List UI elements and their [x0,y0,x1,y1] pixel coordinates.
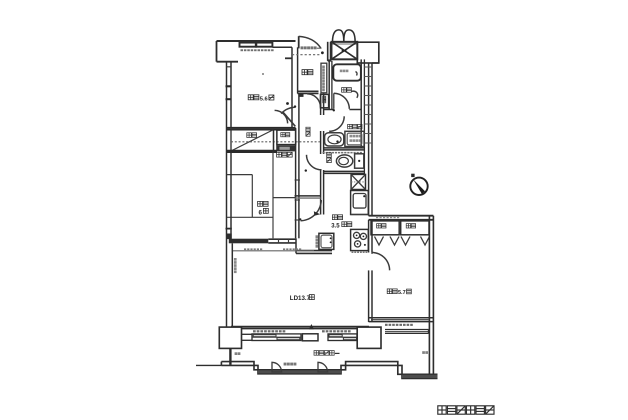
svg-text:LD13.7: LD13.7 [290,295,311,302]
svg-text:5.6: 5.6 [260,96,268,102]
svg-text:3.5: 3.5 [331,224,340,230]
svg-text:6: 6 [259,209,263,216]
svg-text:5.7: 5.7 [398,290,406,296]
